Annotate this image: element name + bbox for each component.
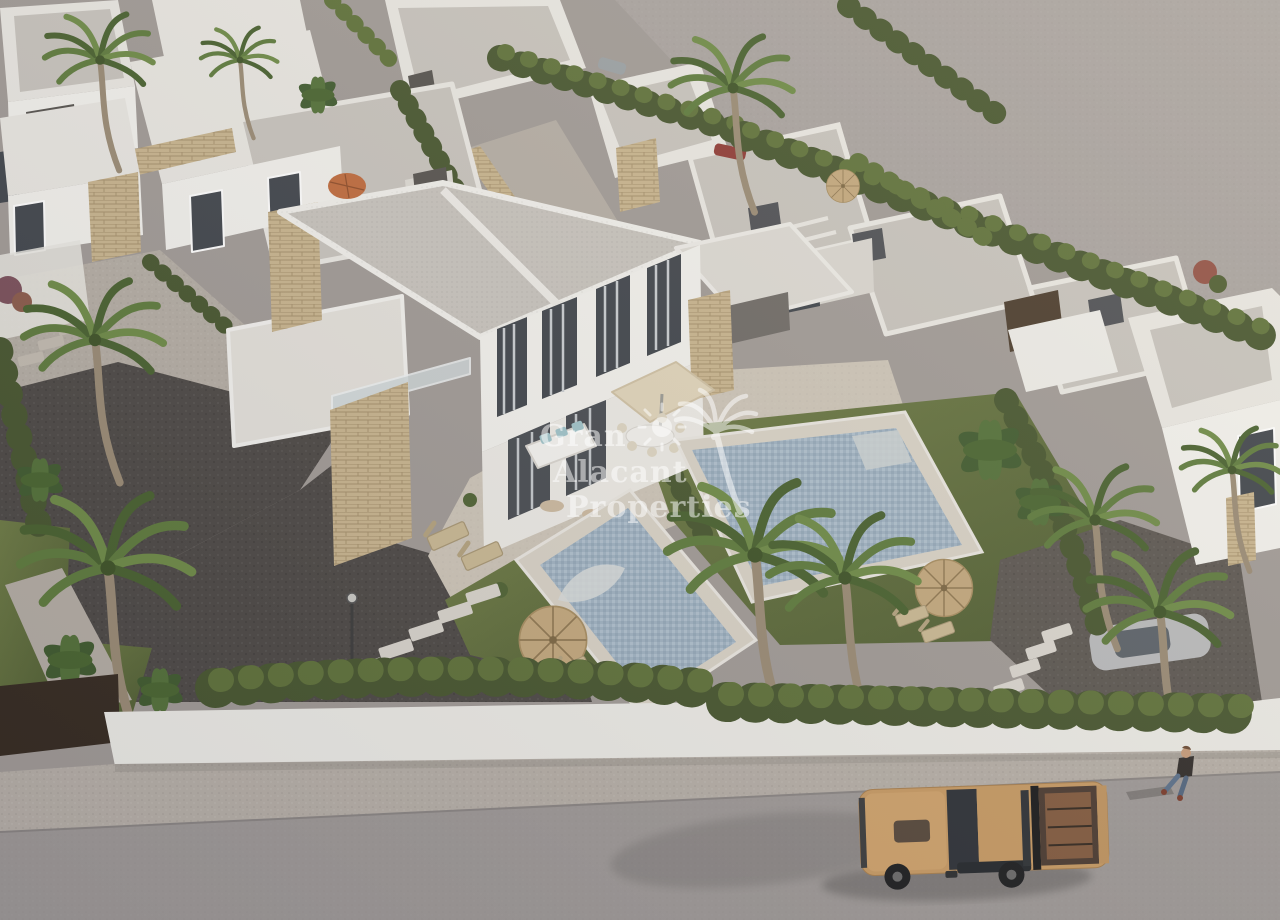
sun-icon [639,404,685,450]
aerial-render: Gran Alacant Properties [0,0,1280,920]
watermark-line-1: Gran [540,419,627,454]
watermark-line-3: Properties [566,490,751,525]
render-viewport: Gran Alacant Properties [0,0,1280,920]
watermark-line-2: Alacant [552,455,688,490]
